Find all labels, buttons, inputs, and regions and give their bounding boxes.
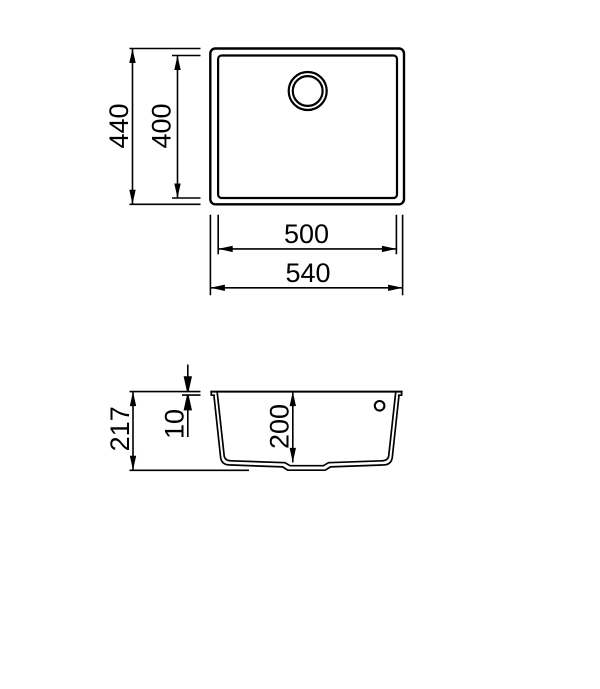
svg-text:200: 200 — [264, 404, 294, 449]
svg-text:217: 217 — [105, 406, 135, 451]
svg-text:440: 440 — [104, 103, 134, 148]
svg-text:10: 10 — [160, 409, 190, 439]
svg-text:540: 540 — [285, 258, 330, 288]
svg-text:400: 400 — [147, 103, 177, 148]
svg-text:500: 500 — [284, 219, 329, 249]
